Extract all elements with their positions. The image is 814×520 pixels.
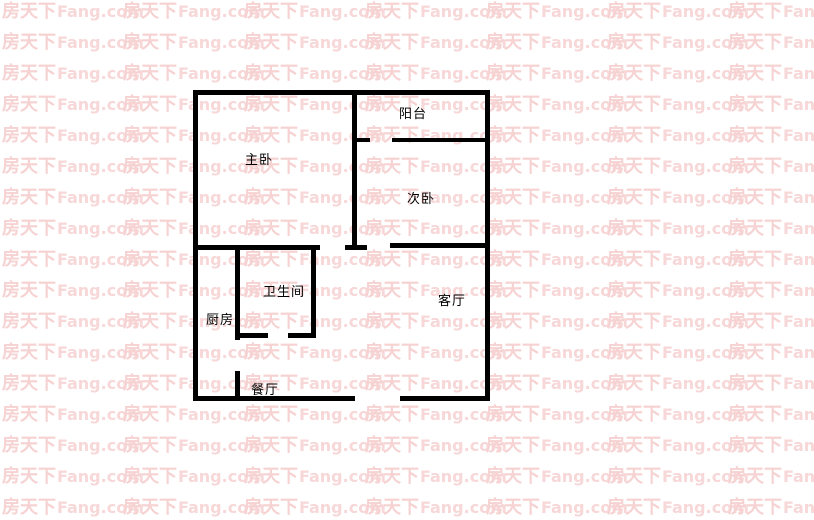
wall-master-bottom <box>193 245 320 250</box>
wall-bath-left <box>235 247 240 340</box>
room-label-master-bedroom: 主卧 <box>245 149 273 168</box>
wall-kitchen-lower <box>235 371 240 401</box>
wall-bath-bottom-b <box>288 333 316 338</box>
wall-top <box>193 90 490 95</box>
room-label-second-bedroom: 次卧 <box>407 188 435 207</box>
wall-balcony-seg-a <box>352 138 370 142</box>
wall-mid-tick <box>345 245 367 250</box>
room-label-kitchen: 厨房 <box>206 309 234 328</box>
wall-bath-bottom-a <box>235 333 268 338</box>
room-label-bathroom: 卫生间 <box>263 281 305 300</box>
room-label-balcony: 阳台 <box>399 103 427 122</box>
page: 房天下Fang.com房天下Fang.com房天下Fang.com房天下Fang… <box>0 0 814 520</box>
floor-plan: 主卧 阳台 次卧 卫生间 厨房 客厅 餐厅 <box>0 0 814 520</box>
room-label-dining-room: 餐厅 <box>251 379 279 398</box>
room-label-living-room: 客厅 <box>438 290 466 309</box>
wall-bottom-right <box>400 396 490 401</box>
wall-secondbed-bottom <box>390 243 485 248</box>
wall-balcony-seg-b <box>392 138 490 142</box>
wall-right <box>485 90 490 401</box>
wall-mid-vertical <box>352 90 357 250</box>
wall-bath-right <box>311 247 316 338</box>
